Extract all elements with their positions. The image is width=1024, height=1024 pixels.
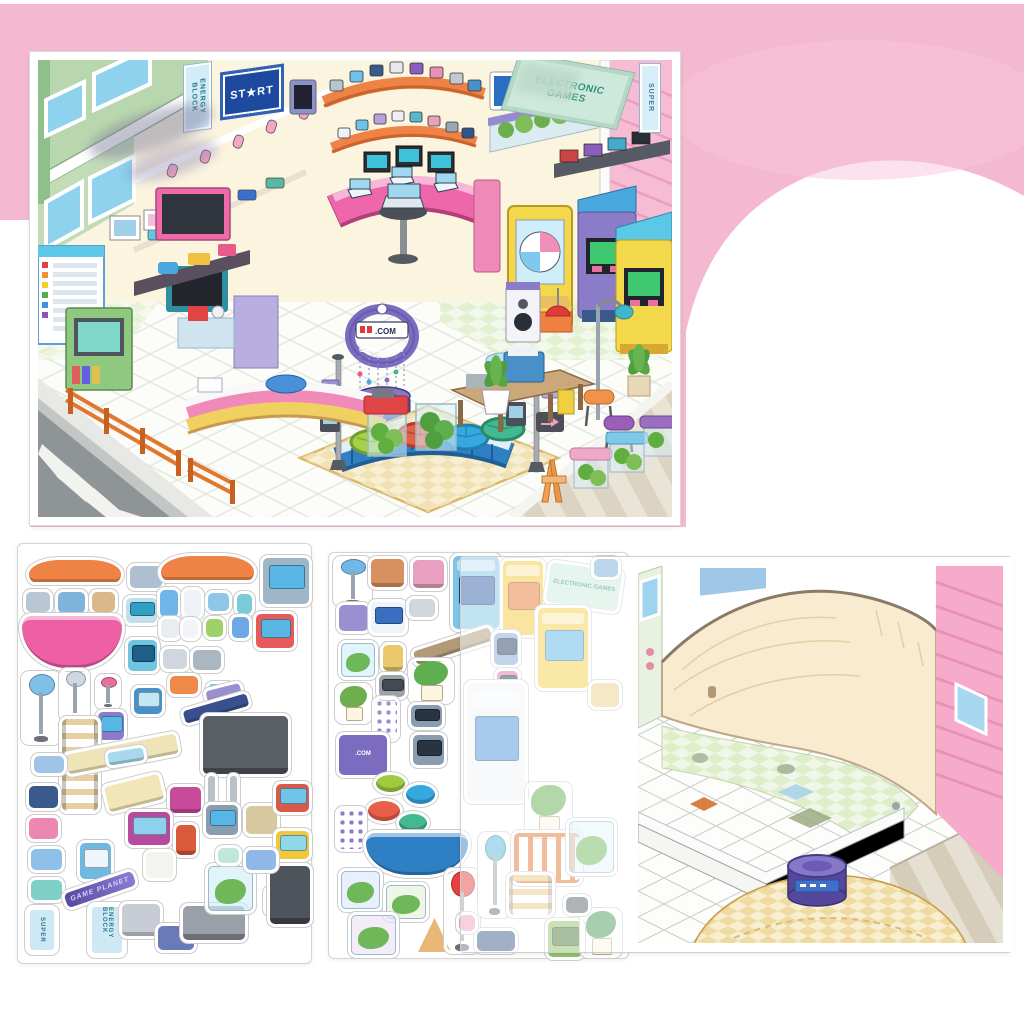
super-sign-sticker: SUPER	[28, 908, 56, 952]
terrarium-flowers-sticker	[341, 871, 380, 909]
mushroom-lamp-sticker	[98, 677, 118, 707]
sticker-chip-sticker	[29, 786, 58, 808]
start-label: ST★RT	[230, 82, 274, 101]
microwave-sticker	[379, 675, 405, 697]
terrarium-sticker	[351, 915, 396, 955]
pc-tower-sticker	[263, 558, 309, 604]
translucent-sheet-edge	[461, 557, 629, 952]
laptop-sticker	[126, 598, 157, 623]
tv-set-sticker	[134, 688, 162, 714]
mp3-player-sticker	[184, 590, 201, 617]
gadget-sticker	[26, 592, 50, 612]
cushion-round-sticker	[376, 775, 405, 792]
purple-cabinet	[234, 296, 278, 368]
room-left-wall	[638, 566, 662, 728]
gadget-sticker	[92, 592, 115, 612]
fridge-blue-sticker	[80, 843, 111, 879]
game-city-label: GAME CITY	[359, 345, 405, 354]
store-scene-poster: .COM GAME CITY	[30, 52, 680, 525]
room-purple-drum	[788, 855, 846, 906]
potted-palm	[480, 355, 511, 414]
arcade-backpack-sticker	[256, 614, 294, 648]
glass-stool-sticker	[336, 559, 369, 604]
mini-tv-sticker	[98, 712, 124, 740]
pedestal-table-sticker	[270, 866, 310, 924]
energy-block-sign-sticker: ENERGY BLOCK	[90, 905, 124, 955]
gadget-sticker	[58, 592, 85, 613]
laptop-sticker	[409, 599, 435, 617]
racing-cart-sticker	[122, 904, 160, 936]
terrarium-sticker	[341, 643, 375, 677]
camera-sticker	[193, 650, 221, 670]
room-back-window	[698, 566, 768, 598]
shelf-unit-sticker	[163, 649, 187, 669]
cushion-round-sticker	[368, 801, 400, 821]
potted-palm	[624, 344, 654, 396]
blur-smudge	[514, 62, 580, 101]
red-tv-sticker	[276, 784, 309, 812]
box-yellow-sticker	[383, 645, 403, 671]
stage-bench-sticker	[366, 833, 468, 875]
palm-plant-sticker	[411, 661, 451, 701]
mint-chip-sticker	[218, 848, 239, 863]
big-screen-pink-frame	[156, 188, 230, 240]
sticker-chip-sticker	[31, 849, 62, 870]
floor-lamp-sticker	[24, 674, 58, 742]
boombox-sticker	[170, 676, 198, 694]
shelf-arc-sticker	[161, 556, 254, 580]
camera-sticker	[208, 593, 229, 611]
cushion-round-sticker	[399, 814, 427, 832]
shelf-arc-sticker	[29, 560, 121, 582]
pink-cabinet	[474, 180, 500, 272]
gadget-sticker	[146, 852, 173, 878]
disco-lamp-sticker	[62, 671, 87, 719]
store-scene: .COM GAME CITY	[38, 60, 672, 517]
yellow-tv-sticker	[276, 831, 309, 859]
empty-room-template	[628, 557, 1013, 952]
sticker-chip-sticker	[29, 818, 58, 839]
screen-dark-sticker	[413, 735, 444, 765]
magenta-box-sticker	[170, 787, 201, 813]
tan-camera-sticker	[246, 806, 277, 834]
sticker-chip-sticker	[31, 880, 62, 900]
bench-long-sticker	[104, 774, 165, 813]
gadget-cluster-sticker	[130, 566, 162, 588]
gadget-sticker	[161, 619, 179, 638]
flip-phone-sticker	[232, 617, 249, 638]
speaker-box	[506, 282, 540, 342]
cushion-round-sticker	[406, 785, 435, 804]
red-tower-sticker	[176, 825, 196, 855]
green-shelf-tv	[66, 308, 132, 390]
table-dark-sticker	[203, 716, 288, 774]
start-poster: ST★RT	[220, 64, 284, 121]
dotcom-label: .COM	[375, 327, 396, 336]
arcade-cabinet-yellow	[616, 212, 672, 354]
cooler-box-sticker	[371, 602, 405, 633]
phone-sticker	[183, 620, 198, 638]
super-sign: SUPER	[640, 64, 660, 132]
mug-chip-sticker	[246, 850, 276, 870]
window-box-sticker	[206, 805, 238, 835]
terrarium-palm	[416, 404, 456, 450]
counter-curved-sticker	[22, 616, 122, 668]
sticker-sheet-left: GAME PLANETSUPERENERGY BLOCK	[17, 543, 312, 964]
media-shelf-sticker	[183, 906, 245, 940]
recliner-sticker	[160, 590, 178, 617]
wood-stool-sticker	[413, 560, 444, 588]
charm-strand-sticker	[375, 699, 397, 739]
potted-plant-sticker	[338, 686, 369, 721]
phone-sticker	[237, 594, 252, 614]
screen-dark-sticker	[411, 705, 442, 727]
wood-stool-sticker	[371, 559, 404, 587]
phone-booth-pair-sticker	[128, 812, 170, 845]
super-label: SUPER	[646, 83, 654, 112]
terrarium-sticker	[386, 885, 426, 919]
tag-chip-sticker	[34, 756, 64, 773]
gadget-cluster-sticker	[339, 605, 368, 631]
handheld-game-sticker	[206, 619, 223, 637]
kiosk-sign-sticker: .COM	[339, 735, 387, 775]
aquarium-sticker	[208, 866, 253, 911]
room-background-sheet	[460, 556, 1012, 953]
charm-strand-sticker	[338, 809, 364, 849]
terrarium-red-top	[364, 388, 408, 456]
monitor-sticker	[128, 640, 157, 671]
